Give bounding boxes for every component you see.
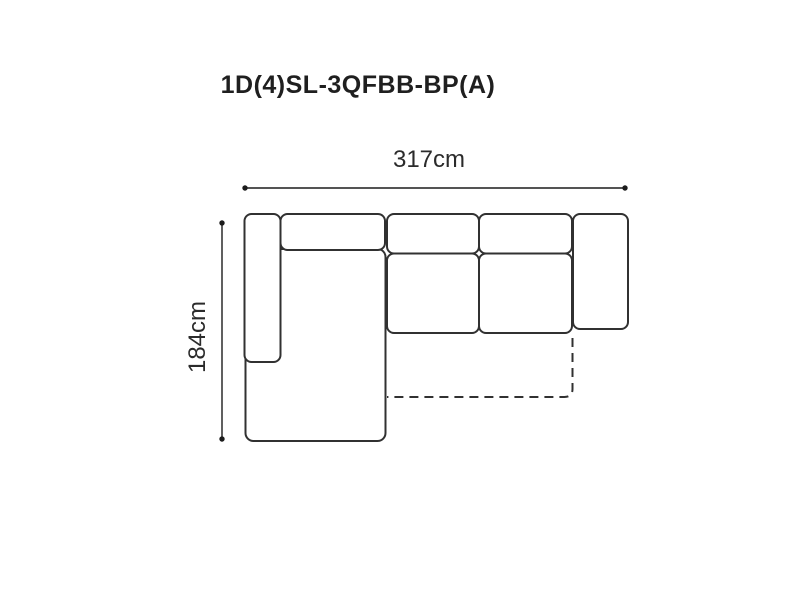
right-armrest: [573, 214, 628, 329]
chaise-back-cushion: [281, 214, 386, 250]
seat-cushion-1: [387, 254, 479, 334]
seat-back-cushion-1: [387, 214, 479, 254]
width-dimension-right-dot-icon: [622, 185, 627, 190]
seat-cushion-2: [479, 254, 572, 334]
width-dimension-line: [242, 185, 627, 190]
fold-out-bed-dashed-outline: [387, 338, 573, 397]
width-dimension-left-dot-icon: [242, 185, 247, 190]
height-dimension-top-dot-icon: [219, 220, 224, 225]
left-armrest: [245, 214, 281, 362]
seat-back-cushion-2: [479, 214, 572, 254]
sofa-line-drawing: [0, 0, 800, 600]
height-dimension-bottom-dot-icon: [219, 436, 224, 441]
height-dimension-line: [219, 220, 224, 441]
sofa-outline-group: [245, 214, 629, 441]
diagram-canvas: 1D(4)SL-3QFBB-BP(A) 317cm 184cm: [0, 0, 800, 600]
